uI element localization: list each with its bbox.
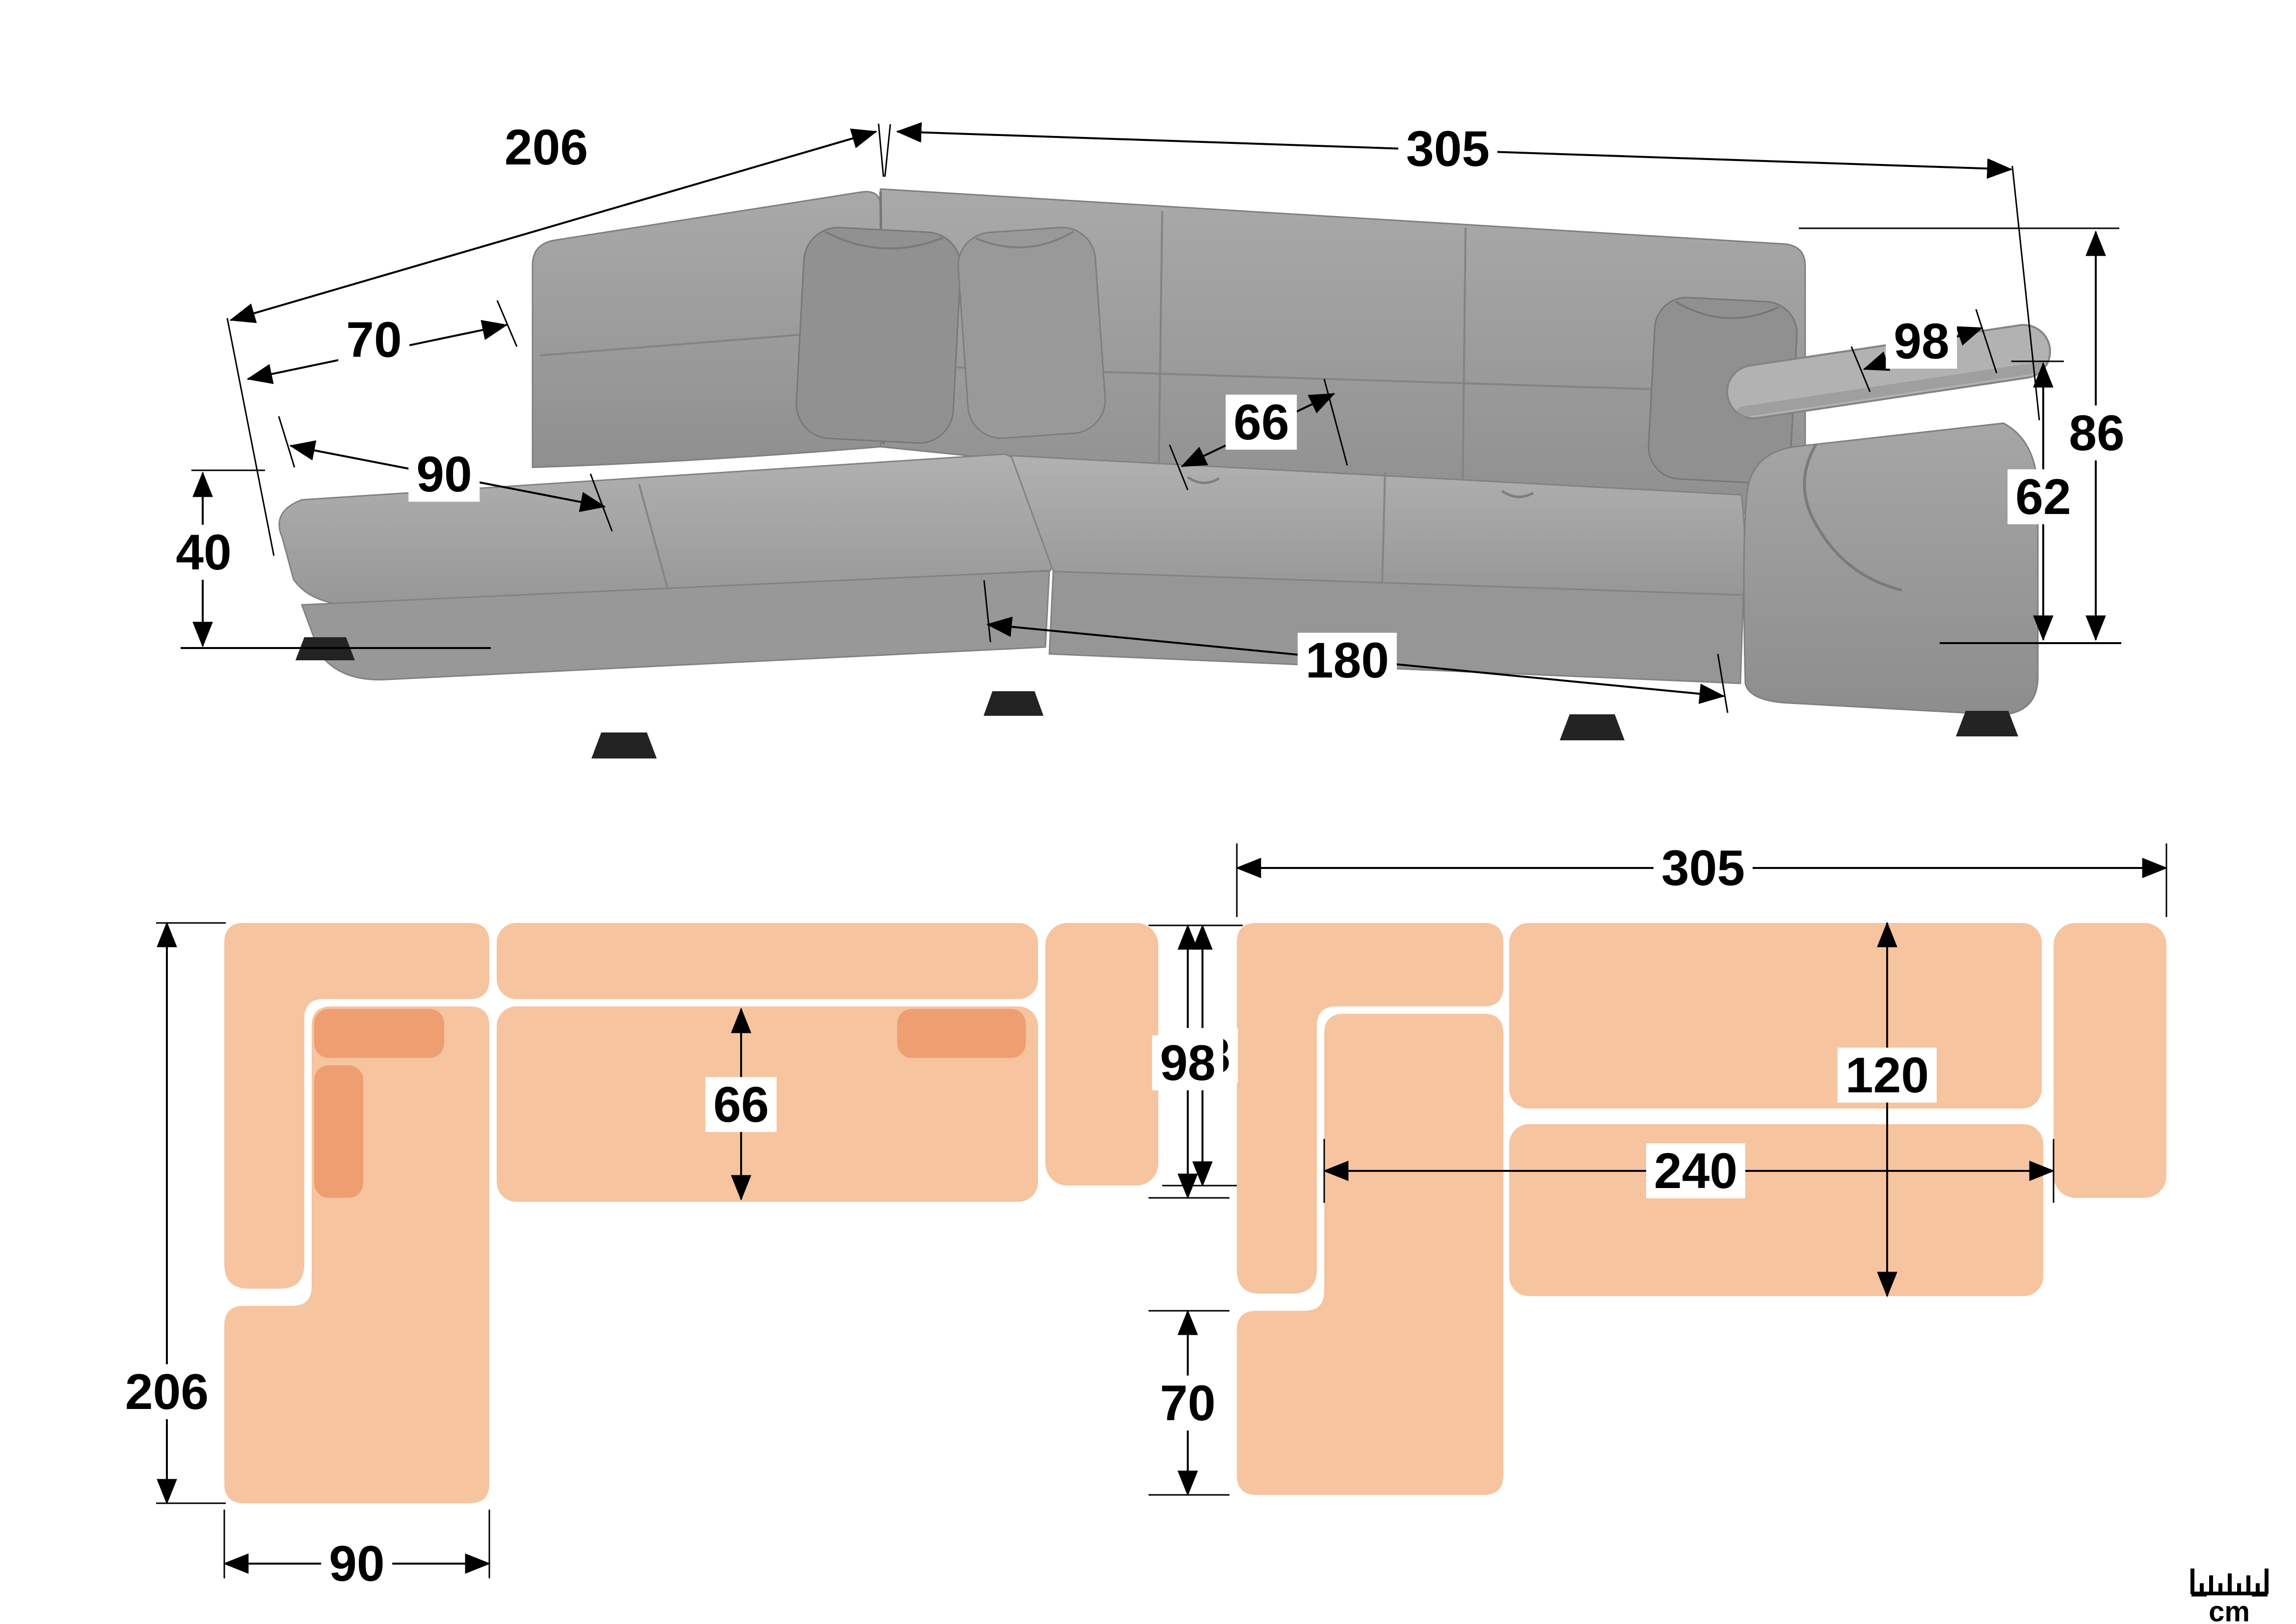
bed-panel-lower <box>1509 1124 2043 1296</box>
dim-label-240-bed: 240 <box>1646 1143 1745 1198</box>
dim-label-70-photo: 70 <box>338 312 409 367</box>
bed-panel-upper <box>1509 923 2042 1109</box>
dim-label-206-plan: 206 <box>117 1364 216 1419</box>
sofa-leg-arm <box>1956 711 2018 736</box>
floor-plan <box>156 923 1243 1578</box>
sleeping-plan-pieces <box>1237 923 2166 1495</box>
dim-label-66-photo: 66 <box>1226 395 1297 450</box>
sofa-pillow-corner-left <box>795 226 962 445</box>
dim-label-98-photo: 98 <box>1886 314 1957 369</box>
ext-line-corner-a <box>879 124 883 177</box>
cm-unit-label: cm <box>2207 1596 2252 1624</box>
bed-armrest <box>2054 923 2166 1198</box>
sofa-leg-center <box>984 691 1043 716</box>
plan-pillow-right <box>897 1009 1026 1058</box>
dim-label-66-plan: 66 <box>705 1077 776 1132</box>
dim-label-206-photo: 206 <box>497 120 596 175</box>
ext-line-206-left <box>227 318 274 556</box>
diagram-canvas <box>0 0 2296 1624</box>
dim-label-90-plan: 90 <box>321 1536 392 1591</box>
dim-label-40-photo: 40 <box>168 525 239 580</box>
plan-main-backrest <box>497 923 1038 999</box>
plan-pillow-vertical <box>314 1065 363 1198</box>
dim-label-70-bed: 70 <box>1152 1376 1223 1431</box>
cm-ruler-icon <box>2191 1569 2268 1594</box>
ext-line-305-right <box>2012 166 2039 420</box>
plan-pillow-horizontal <box>314 1009 444 1058</box>
dim-label-90-photo: 90 <box>408 447 480 502</box>
sofa-pillow-corner-right <box>956 225 1108 441</box>
sofa-leg-chaise <box>591 732 657 758</box>
sofa-illustration <box>279 189 2054 758</box>
sofa-dimension-diagram: 206 305 70 90 66 98 86 62 40 180 206 90 … <box>0 0 2296 1624</box>
ext-line-70-right <box>497 300 517 347</box>
dim-label-305-photo: 305 <box>1398 121 1497 176</box>
dim-label-62-photo: 62 <box>2007 469 2079 524</box>
dim-label-86-photo: 86 <box>2061 406 2132 460</box>
dim-label-98-bed: 98 <box>1152 1035 1223 1090</box>
dim-label-305-bed: 305 <box>1654 840 1753 895</box>
sofa-arm-body <box>1744 423 2038 715</box>
ext-line-90-left <box>279 416 294 467</box>
dim-label-120-bed: 120 <box>1838 1048 1937 1103</box>
plan-armrest <box>1045 923 1158 1186</box>
dim-label-180-photo: 180 <box>1298 633 1397 688</box>
ext-line-corner-b <box>885 124 890 177</box>
sofa-leg-right <box>1560 714 1625 740</box>
